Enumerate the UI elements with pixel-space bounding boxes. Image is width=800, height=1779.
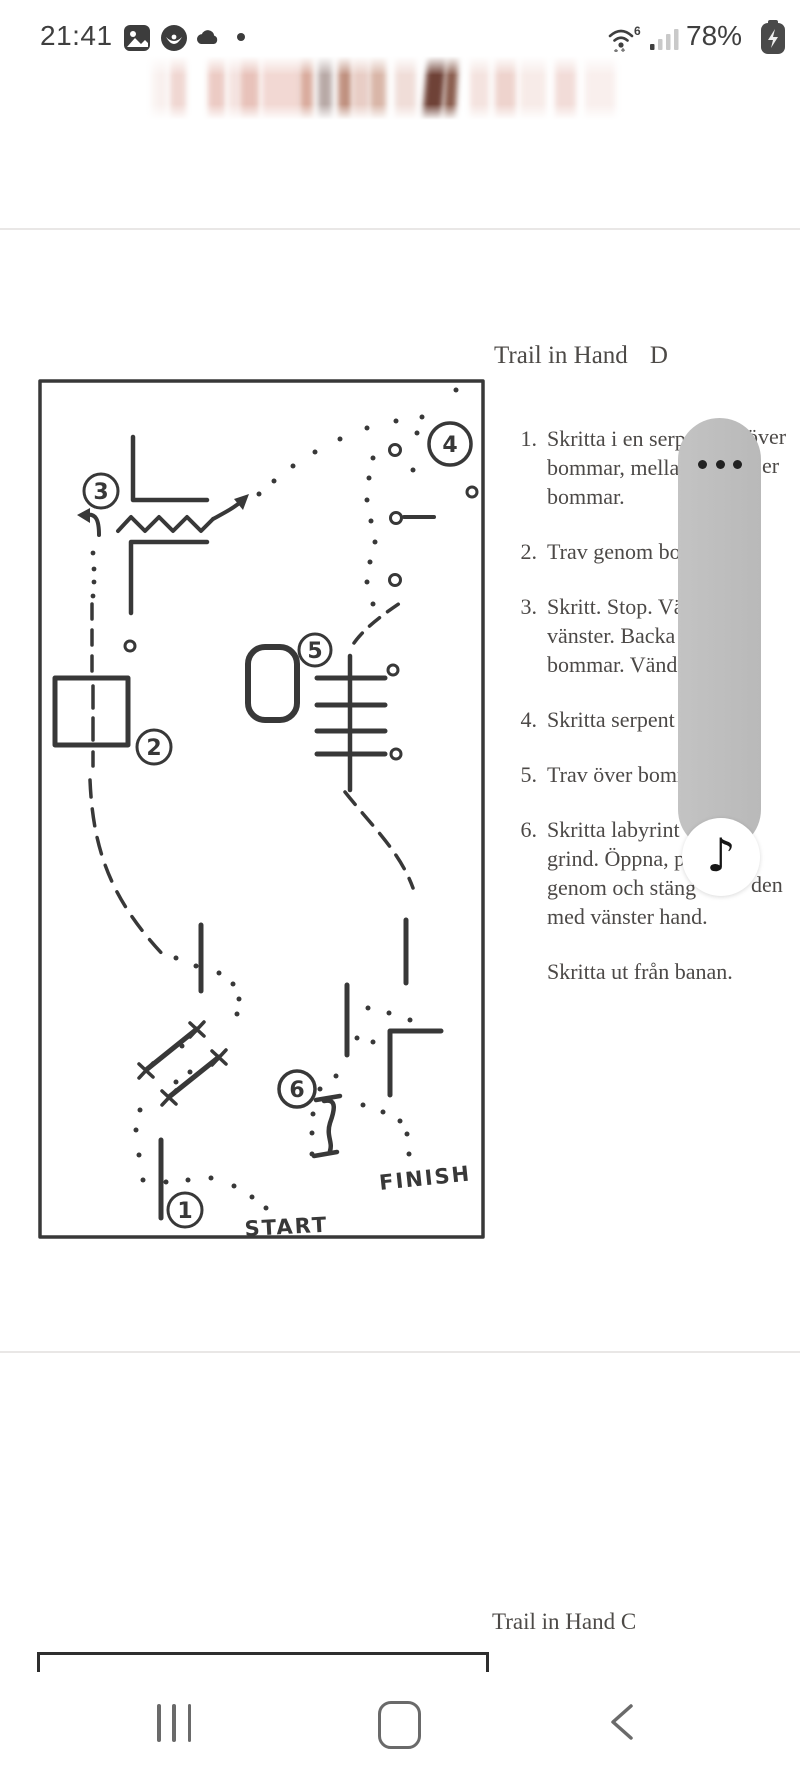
floating-panel-handle[interactable] (678, 418, 761, 851)
battery-charging-icon (757, 20, 791, 56)
instruction-item: 5.Trav över bomm (497, 760, 708, 789)
obstacle-6-gate: 6 FINISH (279, 1071, 472, 1195)
page-title-suffix: D (650, 342, 668, 369)
map-border (40, 381, 483, 1237)
path-right-lower (345, 792, 441, 1095)
instruction-list: 1.Skritta i en serpbommar, mellabommar.2… (497, 424, 708, 957)
app-notification-icon (160, 24, 188, 52)
outro-line: Skritta ut från banan. (497, 957, 733, 986)
obstacle-2-box: 2 (55, 678, 171, 764)
status-time: 21:41 (40, 20, 113, 52)
home-button[interactable] (378, 1701, 421, 1749)
occluded-fragment: er (762, 453, 779, 479)
instruction-item: 3.Skritt. Stop. Vävänster. Backabommar. … (497, 592, 708, 679)
instruction-item: 4.Skritta serpent (497, 705, 708, 734)
svg-text:3: 3 (93, 480, 108, 505)
svg-text:2: 2 (146, 736, 161, 761)
separator (0, 228, 800, 230)
occluded-fragment: den (751, 872, 783, 898)
obstacle-1-start: 1 START (161, 1140, 329, 1241)
more-options-icon[interactable] (698, 460, 742, 469)
svg-text:6: 6 (634, 24, 641, 38)
svg-text:4: 4 (442, 433, 457, 458)
instruction-item: 1.Skritta i en serpbommar, mellabommar. (497, 424, 708, 511)
instruction-item: 6.Skritta labyrintgrind. Öppna, pgenom o… (497, 815, 708, 931)
signal-icon (650, 24, 682, 52)
battery-percent: 78% (686, 20, 742, 52)
obstacle-3-turn: 3 (77, 437, 249, 613)
finish-label: FINISH (378, 1161, 472, 1195)
page-title-text: Trail in Hand (494, 342, 628, 369)
obstacle-5-poles: 5 (248, 599, 406, 790)
obstacle-4-serpentine: 4 (257, 388, 478, 607)
wifi-icon: 6 (606, 24, 648, 52)
page-title: Trail in HandD (494, 342, 668, 370)
notification-dot-icon (237, 33, 245, 41)
recents-button[interactable] (157, 1704, 191, 1742)
start-label: START (244, 1213, 329, 1241)
back-button[interactable] (605, 1703, 635, 1741)
path-dots-bottom (134, 1108, 269, 1211)
svg-text:1: 1 (177, 1199, 192, 1224)
screen: 21:41 6 78% (0, 0, 800, 1779)
instruction-item: 2.Trav genom bom (497, 537, 708, 566)
obstacle-crossed-poles (139, 925, 242, 1105)
separator (0, 1351, 800, 1353)
music-button[interactable]: ♪ (682, 818, 760, 896)
next-page-title: Trail in Hand C (492, 1609, 636, 1635)
next-map-border-top (37, 1652, 489, 1672)
course-map-drawing: 3 2 (0, 360, 500, 1250)
gallery-icon (123, 24, 151, 52)
partial-photo (140, 56, 640, 120)
music-note-icon: ♪ (706, 828, 735, 882)
svg-text:6: 6 (289, 1078, 304, 1103)
cloud-icon (194, 24, 222, 52)
svg-text:5: 5 (307, 639, 322, 664)
